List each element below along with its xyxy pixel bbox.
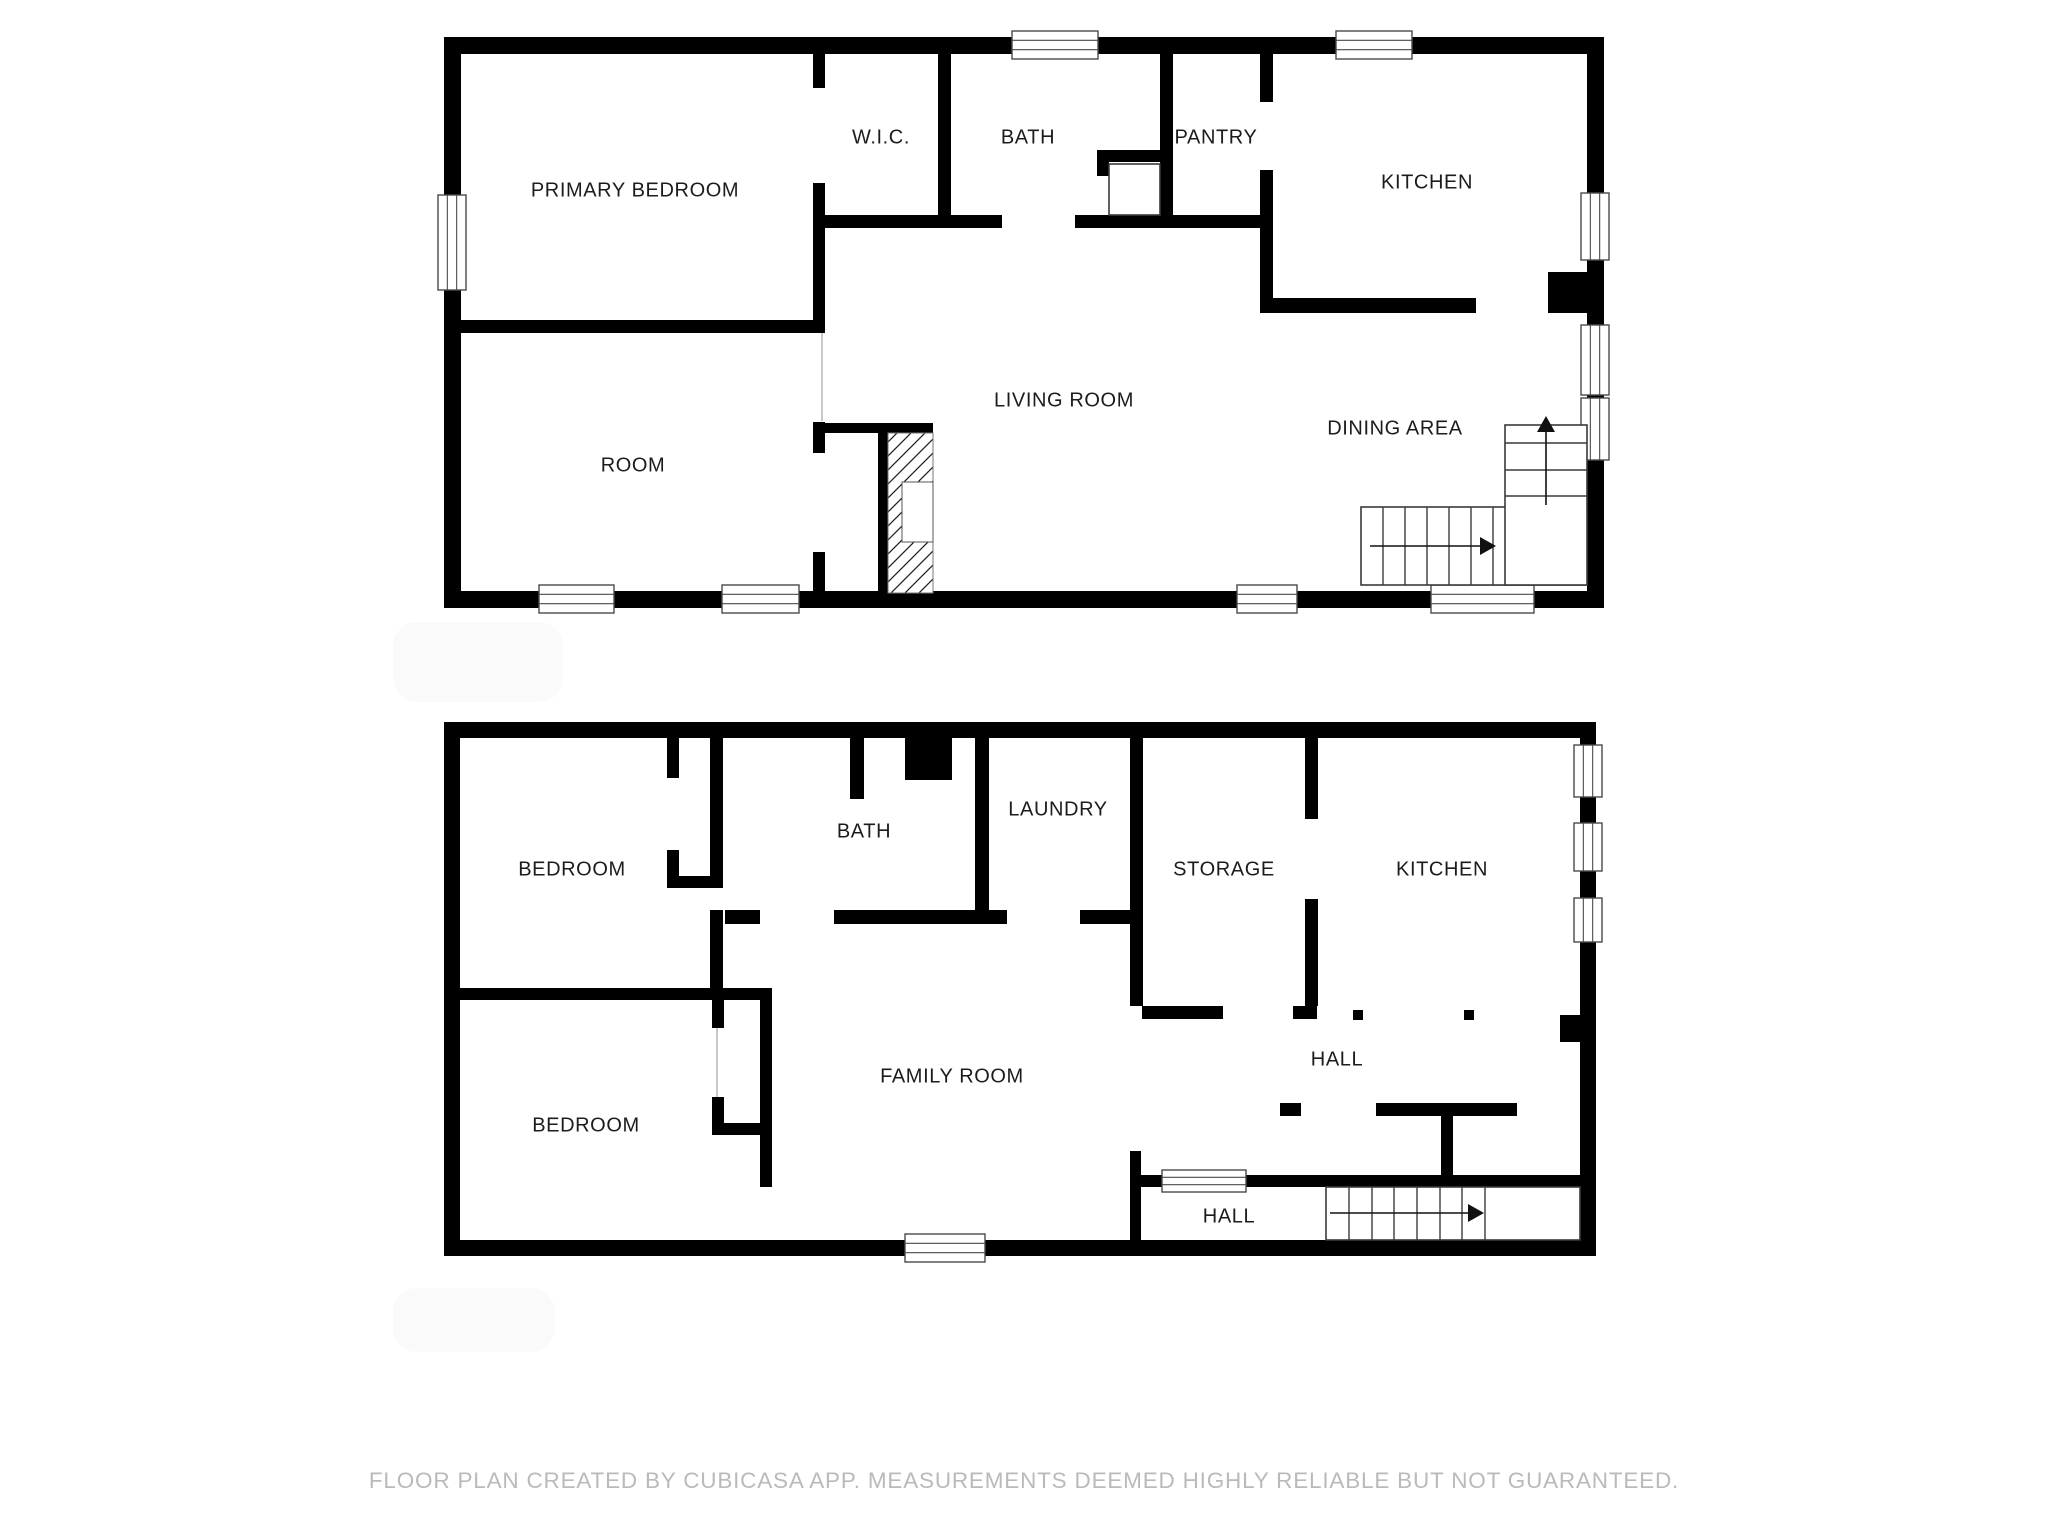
room-label: PANTRY — [1175, 126, 1258, 148]
window — [1574, 898, 1602, 942]
floor-plan-canvas: PRIMARY BEDROOMROOMW.I.C.BATHPANTRYKITCH… — [0, 0, 2048, 1536]
wall — [813, 183, 825, 333]
wall — [834, 910, 1007, 924]
wall — [825, 215, 1002, 228]
wall — [1305, 738, 1318, 819]
wall — [1097, 150, 1172, 162]
room-label: FAMILY ROOM — [880, 1065, 1024, 1087]
window — [1581, 325, 1609, 395]
wall — [444, 591, 1604, 608]
stairs-outline — [1109, 164, 1160, 215]
room-label: HALL — [1203, 1205, 1255, 1227]
room-label: BEDROOM — [532, 1114, 640, 1136]
wall — [444, 37, 461, 608]
wall — [712, 1000, 724, 1028]
window — [1574, 745, 1602, 797]
room-label: BATH — [1001, 126, 1055, 148]
wall — [850, 738, 864, 799]
window — [539, 585, 614, 613]
wall — [813, 552, 825, 593]
watermark-blob — [393, 622, 563, 702]
room-label: W.I.C. — [852, 126, 910, 148]
room-label: KITCHEN — [1381, 171, 1473, 193]
floor-plan-upper-floor: PRIMARY BEDROOMROOMW.I.C.BATHPANTRYKITCH… — [438, 31, 1609, 613]
wall — [710, 738, 723, 888]
wall — [1142, 1006, 1223, 1019]
wall — [667, 738, 679, 778]
wall — [1260, 54, 1273, 102]
room-label: LAUNDRY — [1008, 798, 1107, 820]
wall — [1560, 1015, 1596, 1042]
room-label: BATH — [837, 820, 891, 842]
wall — [1130, 1151, 1141, 1256]
room-label: ROOM — [601, 454, 666, 476]
wall — [1260, 298, 1476, 313]
wall — [1080, 910, 1130, 924]
room-label: HALL — [1311, 1048, 1363, 1070]
wall — [1293, 1006, 1317, 1019]
wall — [461, 320, 813, 333]
wall — [813, 54, 825, 88]
wall — [878, 423, 888, 593]
wall — [725, 910, 760, 924]
wall — [1587, 37, 1604, 608]
window — [438, 195, 466, 290]
room-label: KITCHEN — [1396, 858, 1488, 880]
window — [722, 585, 799, 613]
window — [1574, 823, 1602, 871]
floor-plan-lower-floor: BEDROOMBATHLAUNDRYSTORAGEKITCHENHALLFAMI… — [444, 722, 1602, 1262]
wall — [1305, 899, 1318, 1006]
post-dot — [1464, 1010, 1474, 1020]
window — [1237, 585, 1297, 613]
wall — [760, 988, 772, 1187]
room-label: LIVING ROOM — [994, 389, 1134, 411]
wall — [1444, 1103, 1517, 1116]
fireplace-insert — [902, 482, 933, 542]
wall — [1075, 215, 1273, 228]
wall — [1376, 1103, 1444, 1116]
post-dot — [1353, 1010, 1363, 1020]
window — [1581, 193, 1609, 260]
watermark-blob — [393, 1288, 555, 1352]
floor-plan-page: { "footer": { "text": "FLOOR PLAN CREATE… — [0, 0, 2048, 1536]
wall — [1260, 170, 1273, 313]
stair-arrowhead — [1537, 416, 1555, 432]
wall — [938, 54, 951, 215]
wall — [1160, 54, 1173, 215]
window — [1431, 585, 1534, 613]
footer-disclaimer: FLOOR PLAN CREATED BY CUBICASA APP. MEAS… — [0, 1468, 2048, 1494]
wall — [975, 738, 989, 910]
wall — [1097, 162, 1109, 176]
room-label: DINING AREA — [1327, 417, 1463, 439]
room-label: PRIMARY BEDROOM — [531, 179, 739, 201]
window — [1012, 31, 1098, 59]
wall — [444, 722, 460, 1256]
wall — [1280, 1103, 1301, 1116]
wall — [905, 722, 952, 780]
wall — [1130, 738, 1143, 1006]
window — [905, 1234, 985, 1262]
window — [1336, 31, 1412, 59]
wall — [444, 722, 1596, 738]
window — [1162, 1170, 1246, 1192]
room-label: STORAGE — [1173, 858, 1275, 880]
room-label: BEDROOM — [518, 858, 626, 880]
wall — [710, 910, 723, 988]
wall — [1287, 1175, 1596, 1187]
wall — [1548, 272, 1588, 313]
wall — [444, 1240, 1596, 1256]
wall — [460, 988, 772, 1000]
wall — [1441, 1116, 1453, 1176]
